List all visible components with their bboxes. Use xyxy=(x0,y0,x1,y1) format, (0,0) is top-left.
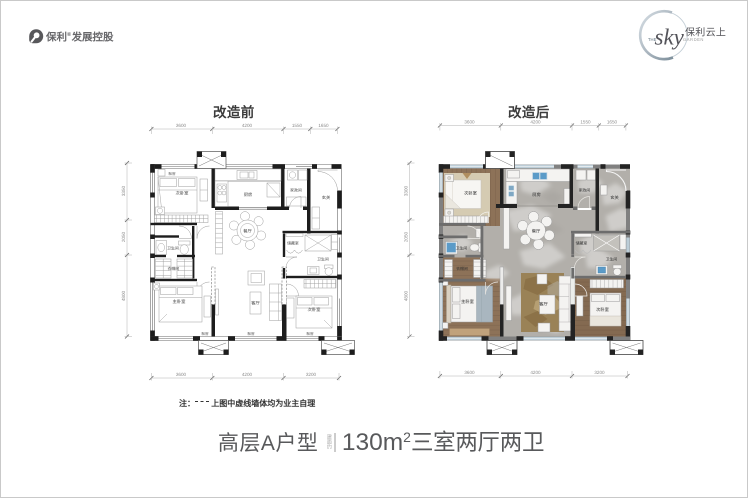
svg-text:3200: 3200 xyxy=(306,372,317,377)
svg-text:3600: 3600 xyxy=(176,372,187,377)
svg-text:4200: 4200 xyxy=(530,370,541,375)
svg-text:3300: 3300 xyxy=(404,185,409,196)
svg-text:次卧室: 次卧室 xyxy=(596,307,610,312)
svg-text:次卧室: 次卧室 xyxy=(464,191,478,196)
svg-text:家政间: 家政间 xyxy=(290,188,302,193)
svg-text:1550: 1550 xyxy=(292,123,303,128)
svg-text:4200: 4200 xyxy=(242,372,253,377)
svg-text:次卧室: 次卧室 xyxy=(176,191,190,196)
svg-text:4200: 4200 xyxy=(242,123,253,128)
svg-text:玄关: 玄关 xyxy=(322,195,331,200)
svg-text:储藏室: 储藏室 xyxy=(287,241,299,246)
svg-text:餐厅: 餐厅 xyxy=(243,229,252,234)
svg-text:卫生间: 卫生间 xyxy=(167,246,179,251)
svg-text:1550: 1550 xyxy=(580,120,591,125)
svg-text:4200: 4200 xyxy=(530,120,541,125)
svg-text:4800: 4800 xyxy=(121,290,126,301)
svg-text:2050: 2050 xyxy=(121,231,126,242)
svg-text:主卧室: 主卧室 xyxy=(461,299,475,304)
svg-text:次卧室: 次卧室 xyxy=(308,307,322,312)
svg-text:飘窗: 飘窗 xyxy=(247,331,255,336)
svg-text:1650: 1650 xyxy=(607,120,618,125)
svg-text:卫生间: 卫生间 xyxy=(456,246,468,251)
svg-text:3200: 3200 xyxy=(594,370,605,375)
svg-text:4800: 4800 xyxy=(404,290,409,301)
svg-text:2050: 2050 xyxy=(404,231,409,242)
svg-text:主卧室: 主卧室 xyxy=(173,299,187,304)
svg-text:卫生间: 卫生间 xyxy=(317,257,329,262)
svg-text:飘窗: 飘窗 xyxy=(201,331,209,336)
svg-text:玄关: 玄关 xyxy=(610,195,619,200)
svg-text:厨房: 厨房 xyxy=(532,192,541,197)
svg-text:3600: 3600 xyxy=(464,370,475,375)
svg-text:衣帽间: 衣帽间 xyxy=(168,266,180,271)
svg-text:3600: 3600 xyxy=(176,123,187,128)
svg-text:客厅: 客厅 xyxy=(539,302,548,307)
svg-text:飘窗: 飘窗 xyxy=(306,331,314,336)
svg-text:飘窗: 飘窗 xyxy=(168,171,176,176)
svg-text:3350: 3350 xyxy=(121,185,126,196)
svg-text:卫生间: 卫生间 xyxy=(606,257,618,262)
svg-text:厨房: 厨房 xyxy=(244,192,253,197)
svg-text:餐厅: 餐厅 xyxy=(532,229,541,234)
svg-text:客厅: 客厅 xyxy=(251,301,260,306)
svg-text:1650: 1650 xyxy=(318,123,329,128)
svg-text:家政间: 家政间 xyxy=(579,188,591,193)
svg-text:衣帽间: 衣帽间 xyxy=(456,266,468,271)
svg-text:3600: 3600 xyxy=(464,120,475,125)
svg-text:储藏室: 储藏室 xyxy=(576,241,588,246)
